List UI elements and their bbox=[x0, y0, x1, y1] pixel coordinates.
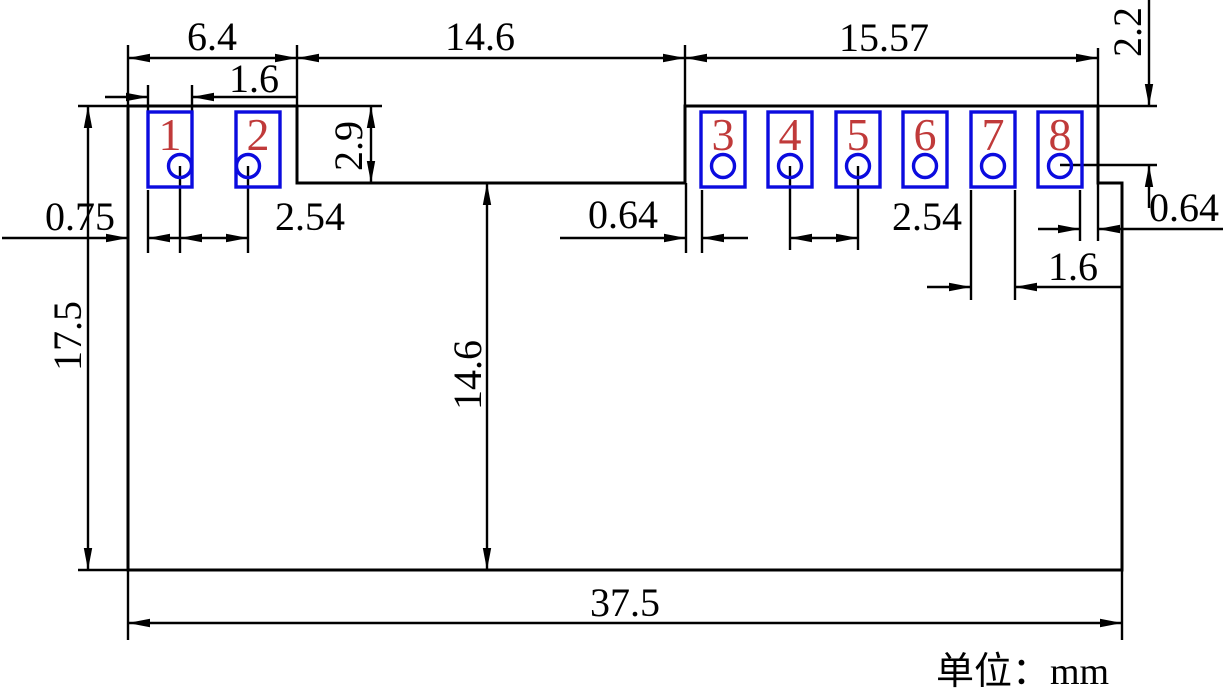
pad-1-number: 1 bbox=[159, 109, 182, 160]
dim-gap-pad8-to-edge: 0.64 bbox=[1149, 185, 1219, 230]
pad-1: 1 bbox=[148, 109, 192, 187]
dimension-labels: 6.4 14.6 15.57 1.6 2.9 2.2 0.75 2.54 0.6… bbox=[45, 7, 1219, 625]
pads: 1 2 3 4 5 6 7 bbox=[148, 109, 1082, 187]
dim-pad-width-right: 1.6 bbox=[1048, 244, 1098, 289]
dimension-drawing-page: 1 2 3 4 5 6 7 bbox=[0, 0, 1225, 692]
pad-2-number: 2 bbox=[247, 109, 270, 160]
dim-gap-notch-to-pad3: 0.64 bbox=[588, 192, 658, 237]
dim-pitch-left: 2.54 bbox=[275, 194, 345, 239]
pad-6: 6 bbox=[903, 109, 947, 187]
unit-note: 单位：mm bbox=[936, 651, 1109, 692]
dim-top-left-width: 6.4 bbox=[187, 14, 237, 59]
pad-3-number: 3 bbox=[712, 109, 735, 160]
dimension-lines bbox=[2, 0, 1223, 623]
pad-3: 3 bbox=[701, 109, 745, 187]
dim-edge-to-pad: 0.75 bbox=[45, 194, 115, 239]
dim-pitch-right: 2.54 bbox=[892, 194, 962, 239]
dim-notch-depth: 2.9 bbox=[326, 121, 371, 171]
pad-5-number: 5 bbox=[847, 109, 870, 160]
pad-2: 2 bbox=[236, 109, 280, 187]
dim-body-height: 17.5 bbox=[45, 301, 90, 371]
pad-6-number: 6 bbox=[914, 109, 937, 160]
module-outline bbox=[128, 106, 1122, 570]
dimension-drawing: 1 2 3 4 5 6 7 bbox=[0, 0, 1225, 692]
pad-7-number: 7 bbox=[982, 109, 1005, 160]
pad-8: 8 bbox=[1038, 109, 1082, 187]
pad-7: 7 bbox=[971, 109, 1015, 187]
dim-notch-to-bottom: 14.6 bbox=[445, 340, 490, 410]
dim-top-right-width: 15.57 bbox=[839, 15, 929, 60]
pad-8-number: 8 bbox=[1049, 109, 1072, 160]
dim-body-width: 37.5 bbox=[590, 580, 660, 625]
dim-pin-row-from-top: 2.2 bbox=[1105, 7, 1150, 57]
dim-notch-width: 14.6 bbox=[445, 14, 515, 59]
dim-pad-width-left: 1.6 bbox=[229, 56, 279, 101]
pad-4-number: 4 bbox=[779, 109, 802, 160]
